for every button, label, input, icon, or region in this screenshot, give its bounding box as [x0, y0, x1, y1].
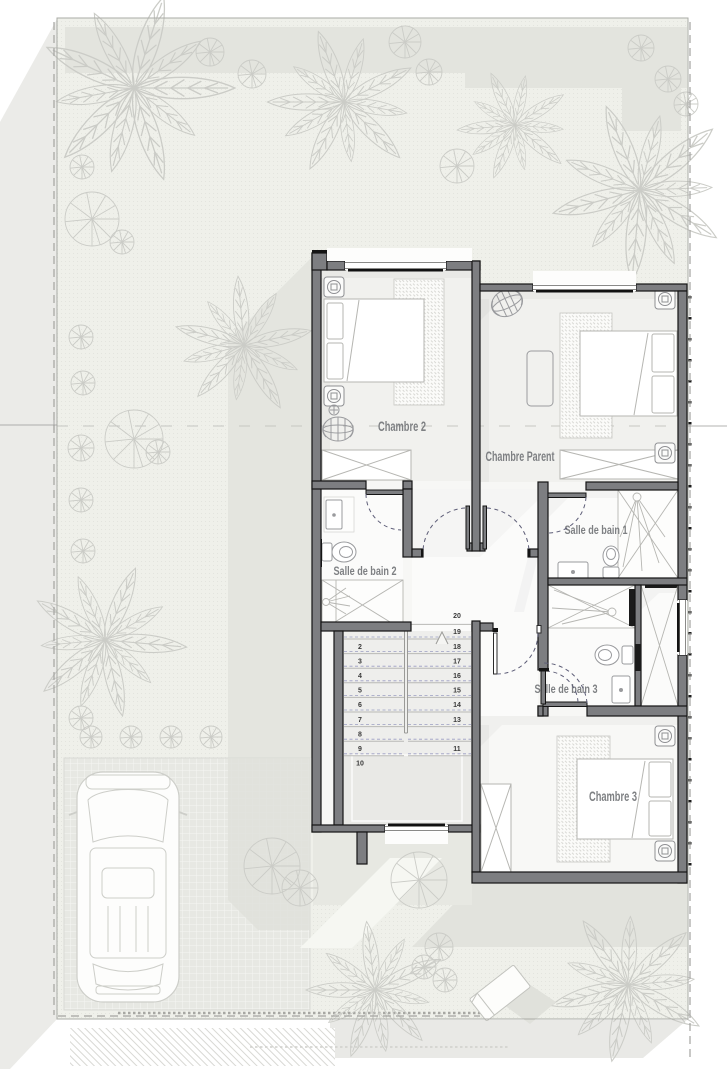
svg-text:4: 4: [358, 673, 362, 680]
svg-text:2: 2: [358, 644, 362, 651]
svg-text:13: 13: [453, 717, 461, 724]
svg-text:19: 19: [453, 629, 461, 636]
svg-text:7: 7: [358, 717, 362, 724]
svg-text:10: 10: [356, 761, 364, 768]
svg-text:5: 5: [358, 688, 362, 695]
svg-text:Chambre 3: Chambre 3: [589, 789, 637, 804]
svg-text:9: 9: [358, 746, 362, 753]
svg-text:Chambre Parent: Chambre Parent: [486, 449, 555, 464]
svg-text:6: 6: [358, 702, 362, 709]
svg-text:3: 3: [358, 658, 362, 665]
svg-text:8: 8: [358, 731, 362, 738]
svg-text:18: 18: [453, 644, 461, 651]
svg-text:20: 20: [453, 613, 461, 620]
svg-text:17: 17: [453, 658, 461, 665]
svg-text:16: 16: [453, 673, 461, 680]
svg-text:11: 11: [453, 746, 461, 753]
svg-text:14: 14: [453, 702, 461, 709]
svg-text:Chambre 2: Chambre 2: [378, 419, 426, 434]
svg-text:Salle de bain 2: Salle de bain 2: [334, 566, 397, 578]
svg-text:Salle de bain 1: Salle de bain 1: [565, 525, 628, 537]
svg-text:15: 15: [453, 688, 461, 695]
